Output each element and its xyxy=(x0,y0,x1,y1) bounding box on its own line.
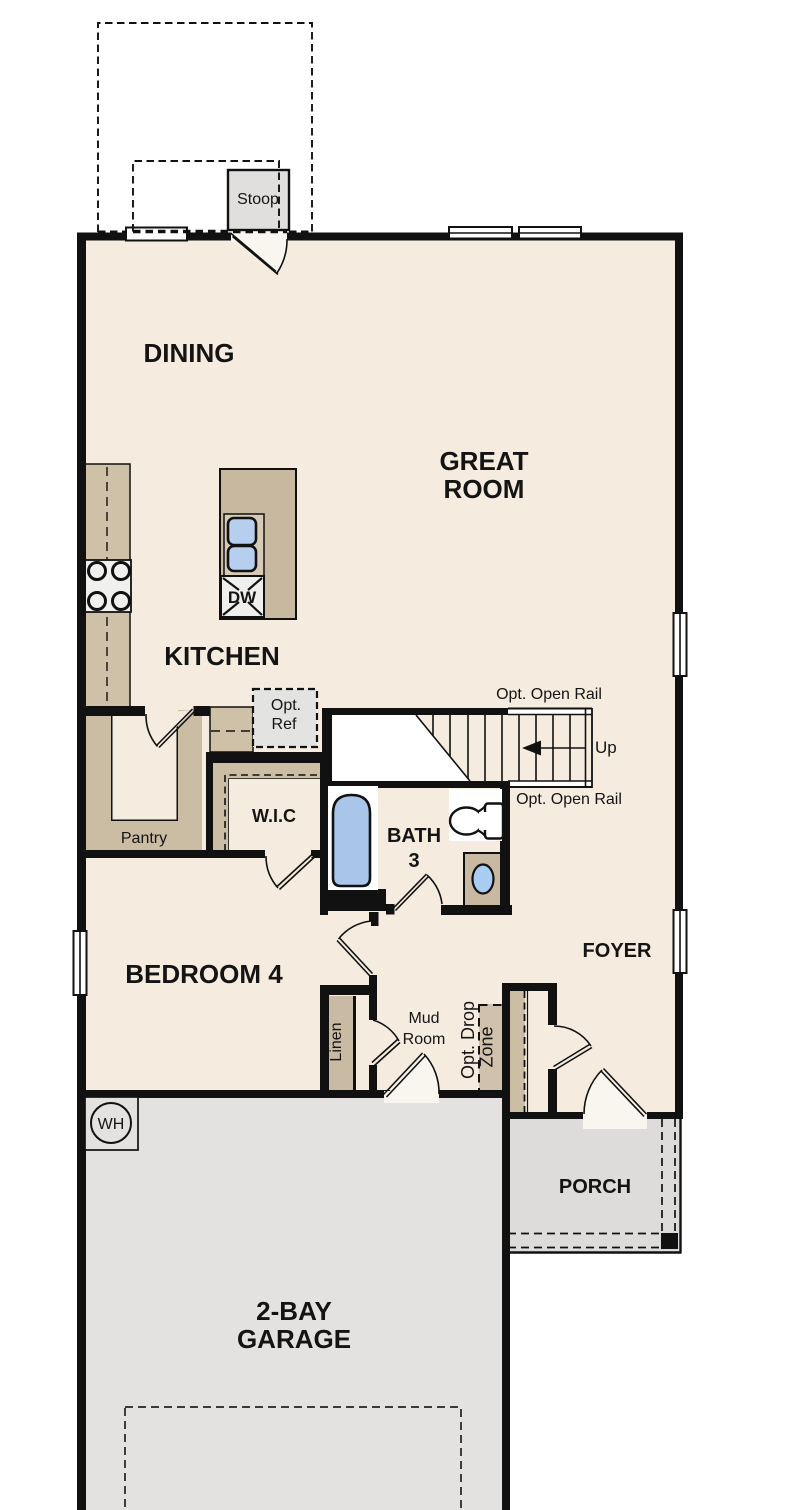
svg-text:GARAGE: GARAGE xyxy=(237,1324,351,1354)
svg-text:WH: WH xyxy=(98,1116,125,1133)
svg-text:3: 3 xyxy=(408,850,419,872)
svg-text:Mud: Mud xyxy=(408,1010,439,1027)
svg-text:Zone: Zone xyxy=(477,1026,497,1067)
svg-text:Stoop: Stoop xyxy=(237,191,279,208)
svg-text:Opt.: Opt. xyxy=(271,697,301,714)
svg-text:BATH: BATH xyxy=(387,825,441,847)
svg-text:Opt. Open Rail: Opt. Open Rail xyxy=(496,686,602,703)
svg-text:Room: Room xyxy=(403,1031,446,1048)
svg-text:Linen: Linen xyxy=(328,1022,345,1061)
svg-text:KITCHEN: KITCHEN xyxy=(164,641,280,671)
svg-text:Up: Up xyxy=(595,738,617,757)
svg-text:ROOM: ROOM xyxy=(444,474,525,504)
svg-text:Opt. Open Rail: Opt. Open Rail xyxy=(516,791,622,808)
svg-text:GREAT: GREAT xyxy=(439,446,528,476)
svg-text:Ref: Ref xyxy=(272,716,297,733)
svg-text:PORCH: PORCH xyxy=(559,1176,631,1198)
svg-text:DINING: DINING xyxy=(144,338,235,368)
svg-text:FOYER: FOYER xyxy=(583,940,652,962)
svg-text:2-BAY: 2-BAY xyxy=(256,1296,332,1326)
svg-text:Opt. Drop: Opt. Drop xyxy=(458,1001,478,1079)
svg-text:W.I.C: W.I.C xyxy=(252,806,296,826)
svg-text:DW: DW xyxy=(228,588,257,607)
svg-text:Pantry: Pantry xyxy=(121,830,167,847)
svg-text:BEDROOM 4: BEDROOM 4 xyxy=(125,959,283,989)
